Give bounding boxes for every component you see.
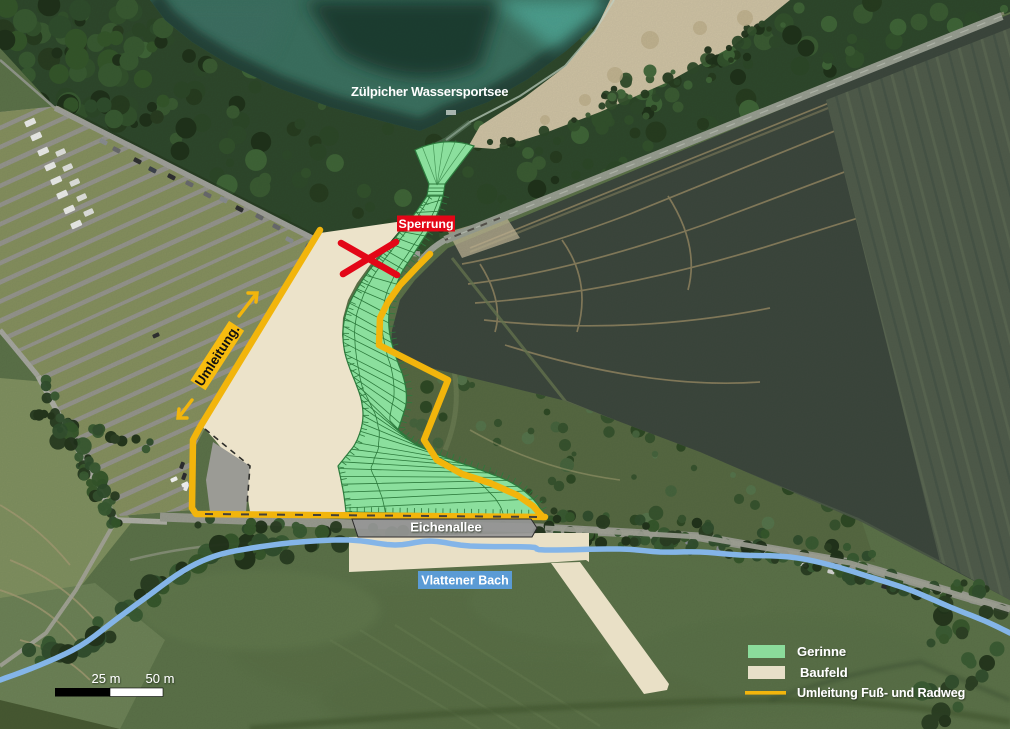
- svg-text:Gerinne: Gerinne: [797, 644, 846, 659]
- svg-text:Umleitung Fuß- und Radweg: Umleitung Fuß- und Radweg: [797, 686, 965, 700]
- svg-text:Zülpicher Wassersportsee: Zülpicher Wassersportsee: [351, 84, 508, 99]
- svg-text:Vlattener Bach: Vlattener Bach: [421, 574, 509, 588]
- svg-text:Sperrung: Sperrung: [398, 217, 453, 231]
- svg-text:50 m: 50 m: [146, 671, 175, 686]
- svg-text:25 m: 25 m: [92, 671, 121, 686]
- svg-text:Eichenallee: Eichenallee: [410, 520, 482, 535]
- svg-text:Baufeld: Baufeld: [800, 665, 848, 680]
